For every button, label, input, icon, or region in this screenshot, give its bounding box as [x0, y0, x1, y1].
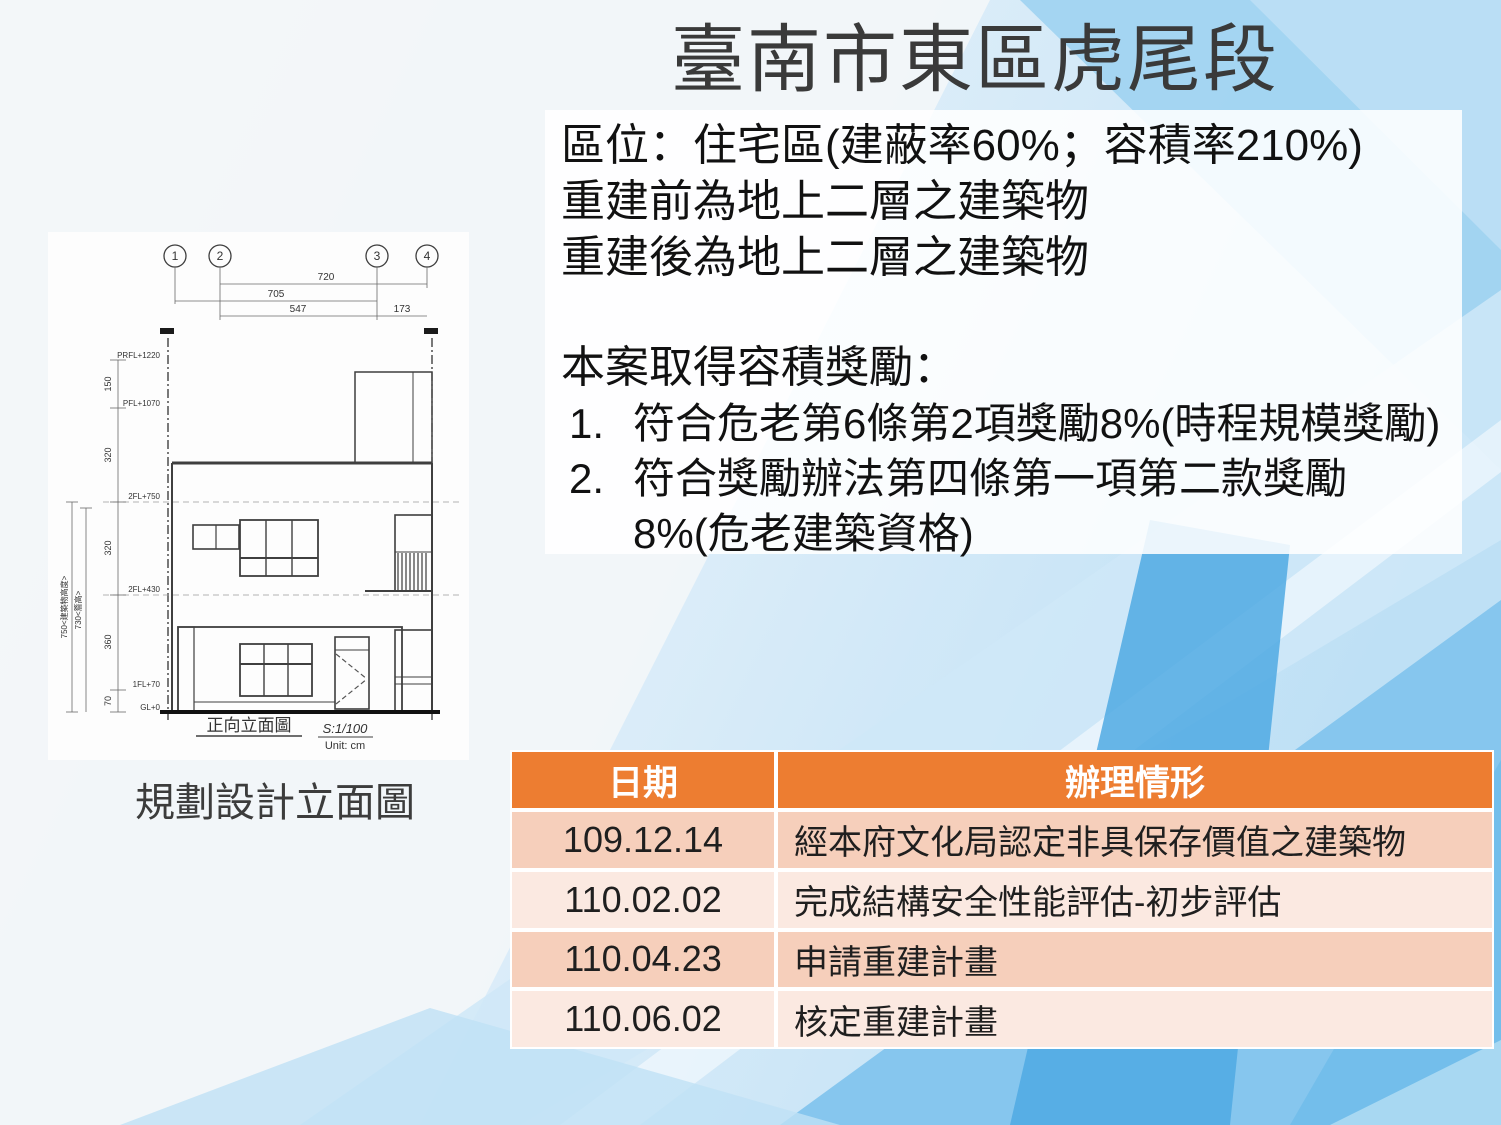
info-line-before: 重建前為地上二層之建築物 — [561, 174, 1446, 230]
info-box: 區位：住宅區(建蔽率60%；容積率210%) 重建前為地上二層之建築物 重建後為… — [545, 110, 1462, 554]
blank-line — [561, 286, 1446, 340]
elevation-drawing: 1 2 3 4 720 705 547 173 — [48, 232, 469, 760]
level-prfl: PRFL+1220 — [117, 351, 160, 360]
table-row-4-status: 核定重建計畫 — [778, 991, 1492, 1047]
plan-scale: S:1/100 — [323, 721, 369, 736]
boundary-label-blob — [160, 328, 174, 334]
level-2fl-430: 2FL+430 — [128, 585, 160, 594]
seg-height-320a: 320 — [103, 447, 113, 462]
plan-title: 正向立面圖 — [207, 716, 292, 735]
grid-bubble-1: 1 — [172, 249, 179, 263]
level-1fl: 1FL+70 — [133, 680, 161, 689]
seg-height-320b: 320 — [103, 540, 113, 555]
grid-bubble-4: 4 — [424, 249, 431, 263]
table-header-date: 日期 — [512, 752, 774, 808]
plan-unit: Unit: cm — [325, 740, 365, 752]
drawing-caption: 規劃設計立面圖 — [55, 770, 495, 828]
table-header-status: 辦理情形 — [778, 752, 1492, 808]
info-line-after: 重建後為地上二層之建築物 — [561, 230, 1446, 286]
table-row-1-status: 經本府文化局認定非具保存價值之建築物 — [778, 812, 1492, 868]
bonus-item-text: 符合危老第6條第2項獎勵8%(時程規模獎勵) — [633, 396, 1446, 451]
bonus-item-number: 2. — [561, 451, 633, 561]
grid-bubble-2: 2 — [217, 249, 224, 263]
bonus-item-number: 1. — [561, 396, 633, 451]
table-row-2-date: 110.02.02 — [512, 872, 774, 928]
presentation-slide: 臺南市東區虎尾段 區位：住宅區(建蔽率60%；容積率210%) 重建前為地上二層… — [0, 0, 1501, 1125]
level-2fl-750: 2FL+750 — [128, 492, 160, 501]
boundary-label-blob — [424, 328, 438, 334]
bonus-item-2: 2. 符合獎勵辦法第四條第一項第二款獎勵 8%(危老建築資格) — [561, 451, 1446, 561]
overall-height-750: 750<建築物高度> — [59, 575, 69, 638]
level-gl: GL+0 — [140, 703, 160, 712]
table-row-2-status: 完成結構安全性能評估-初步評估 — [778, 872, 1492, 928]
overall-height-730: 730<簷高> — [73, 590, 83, 629]
dim-705: 705 — [268, 289, 285, 300]
seg-height-360: 360 — [103, 634, 113, 649]
bonus-item-1: 1. 符合危老第6條第2項獎勵8%(時程規模獎勵) — [561, 396, 1446, 451]
bonus-item-text-line2: 8%(危老建築資格) — [633, 506, 1446, 561]
level-pfl: PFL+1070 — [123, 399, 161, 408]
grid-bubble-3: 3 — [374, 249, 381, 263]
table-row-3-date: 110.04.23 — [512, 932, 774, 988]
bonus-heading: 本案取得容積獎勵： — [561, 340, 1446, 396]
seg-height-70: 70 — [103, 696, 113, 706]
dim-547: 547 — [290, 304, 307, 315]
info-line-zoning: 區位：住宅區(建蔽率60%；容積率210%) — [561, 118, 1446, 174]
table-row-3-status: 申請重建計畫 — [778, 932, 1492, 988]
dim-720: 720 — [318, 272, 335, 283]
timeline-table: 日期 辦理情形 109.12.14 經本府文化局認定非具保存價值之建築物 110… — [510, 750, 1494, 1049]
page-title: 臺南市東區虎尾段 — [540, 18, 1410, 102]
table-row-4-date: 110.06.02 — [512, 991, 774, 1047]
seg-height-150: 150 — [103, 376, 113, 391]
bonus-item-text-line1: 符合獎勵辦法第四條第一項第二款獎勵 — [633, 451, 1446, 506]
bonus-item-text: 符合獎勵辦法第四條第一項第二款獎勵 8%(危老建築資格) — [633, 451, 1446, 561]
table-row-1-date: 109.12.14 — [512, 812, 774, 868]
dim-173: 173 — [394, 304, 411, 315]
